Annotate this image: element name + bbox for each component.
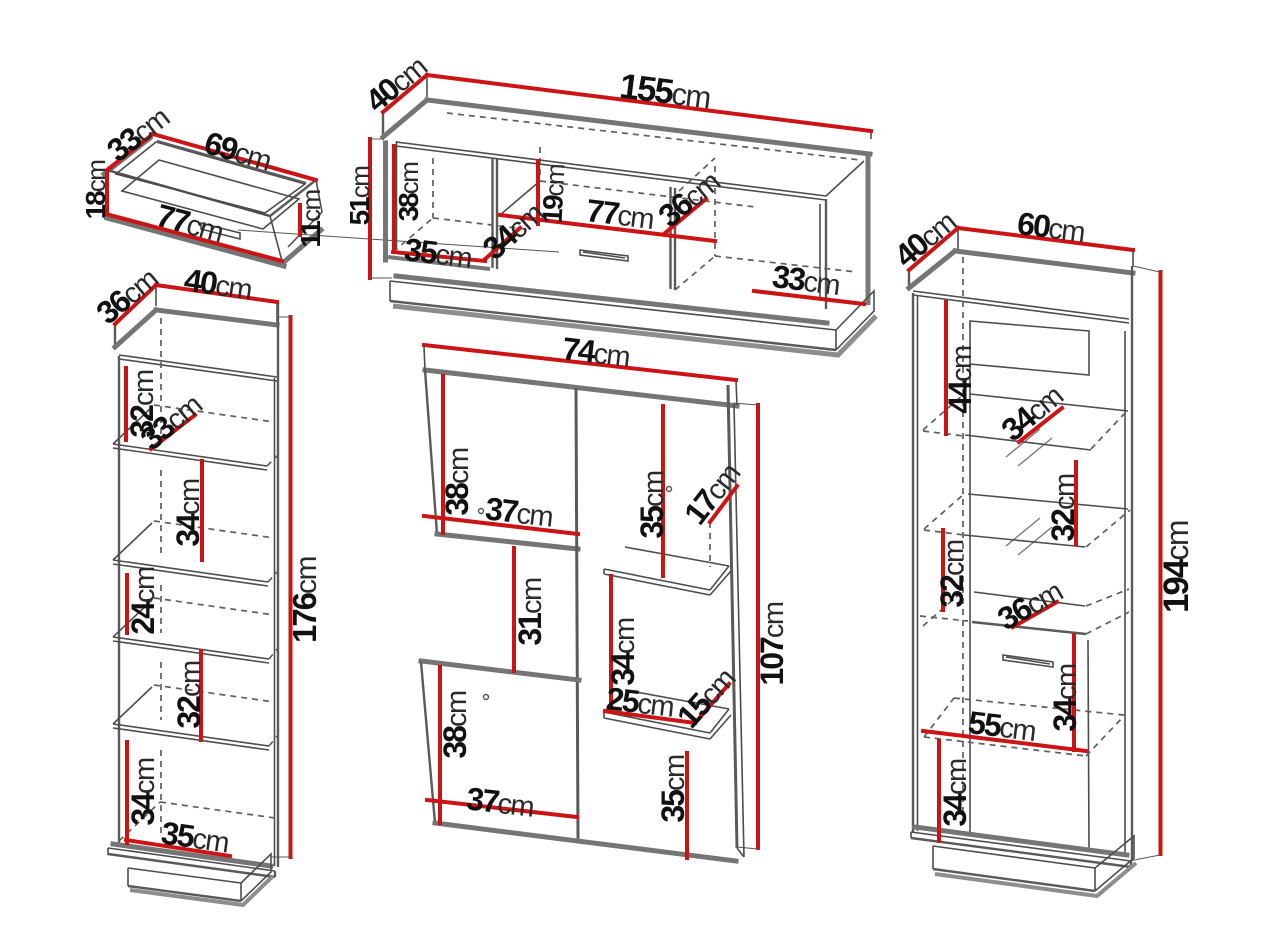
svg-text:38cm: 38cm: [437, 691, 473, 759]
svg-text:38cm: 38cm: [439, 448, 475, 516]
svg-text:44cm: 44cm: [942, 346, 978, 414]
svg-text:35cm: 35cm: [634, 471, 670, 539]
svg-text:34cm: 34cm: [605, 618, 641, 686]
svg-text:194cm: 194cm: [1157, 521, 1196, 613]
svg-text:34cm: 34cm: [937, 759, 973, 827]
svg-text:34cm: 34cm: [125, 758, 161, 826]
svg-text:24cm: 24cm: [125, 567, 161, 635]
svg-text:11cm: 11cm: [295, 190, 326, 247]
svg-text:176cm: 176cm: [286, 556, 323, 643]
svg-text:34cm: 34cm: [1047, 664, 1083, 732]
svg-text:32cm: 32cm: [1045, 474, 1081, 542]
svg-text:51cm: 51cm: [344, 167, 375, 226]
svg-text:107cm: 107cm: [754, 602, 790, 685]
svg-text:38cm: 38cm: [393, 163, 424, 222]
svg-text:31cm: 31cm: [512, 578, 548, 646]
svg-text:34cm: 34cm: [170, 479, 206, 547]
svg-text:35cm: 35cm: [655, 755, 691, 823]
svg-text:32cm: 32cm: [934, 540, 970, 608]
svg-text:32cm: 32cm: [171, 661, 207, 729]
svg-text:18cm: 18cm: [80, 161, 111, 220]
